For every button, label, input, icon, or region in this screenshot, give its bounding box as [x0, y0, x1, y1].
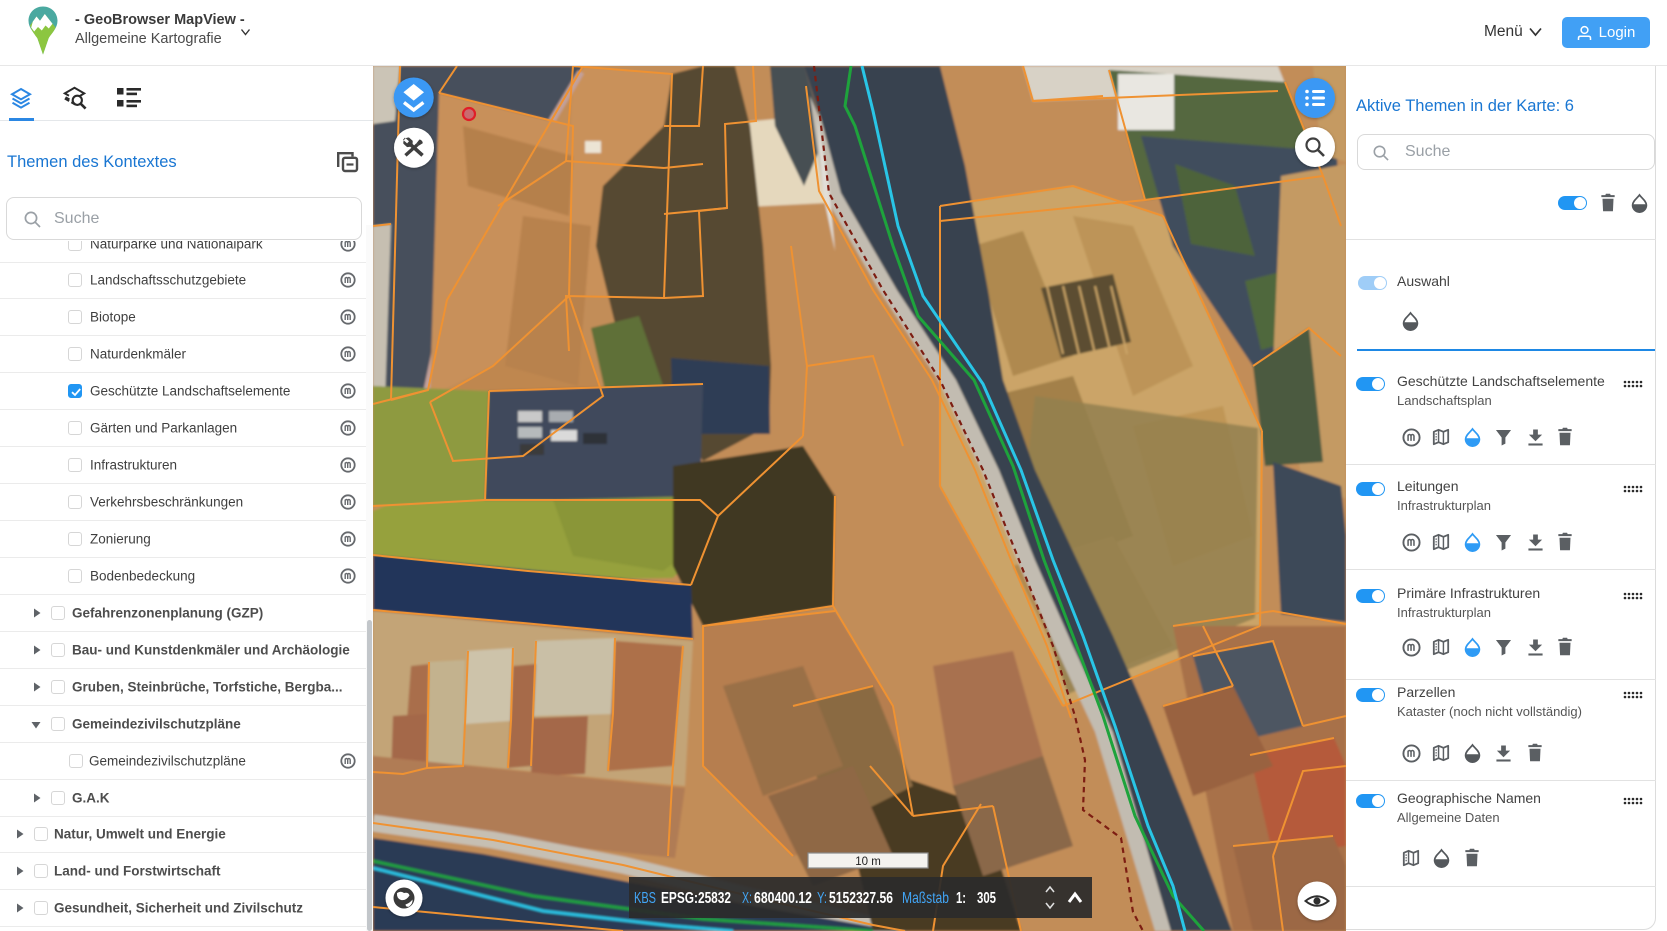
svg-text:305: 305 — [977, 890, 996, 907]
svg-text:680400.12: 680400.12 — [754, 890, 812, 907]
svg-text:X:: X: — [742, 890, 752, 907]
svg-text:5152327.56: 5152327.56 — [829, 890, 893, 907]
svg-text:1:: 1: — [956, 890, 966, 907]
svg-text:EPSG:25832: EPSG:25832 — [661, 890, 731, 907]
svg-text:10 m: 10 m — [855, 856, 881, 868]
svg-text:KBS: KBS — [634, 890, 656, 907]
svg-text:Maßstab: Maßstab — [902, 890, 949, 907]
svg-text:Y:: Y: — [817, 890, 827, 907]
